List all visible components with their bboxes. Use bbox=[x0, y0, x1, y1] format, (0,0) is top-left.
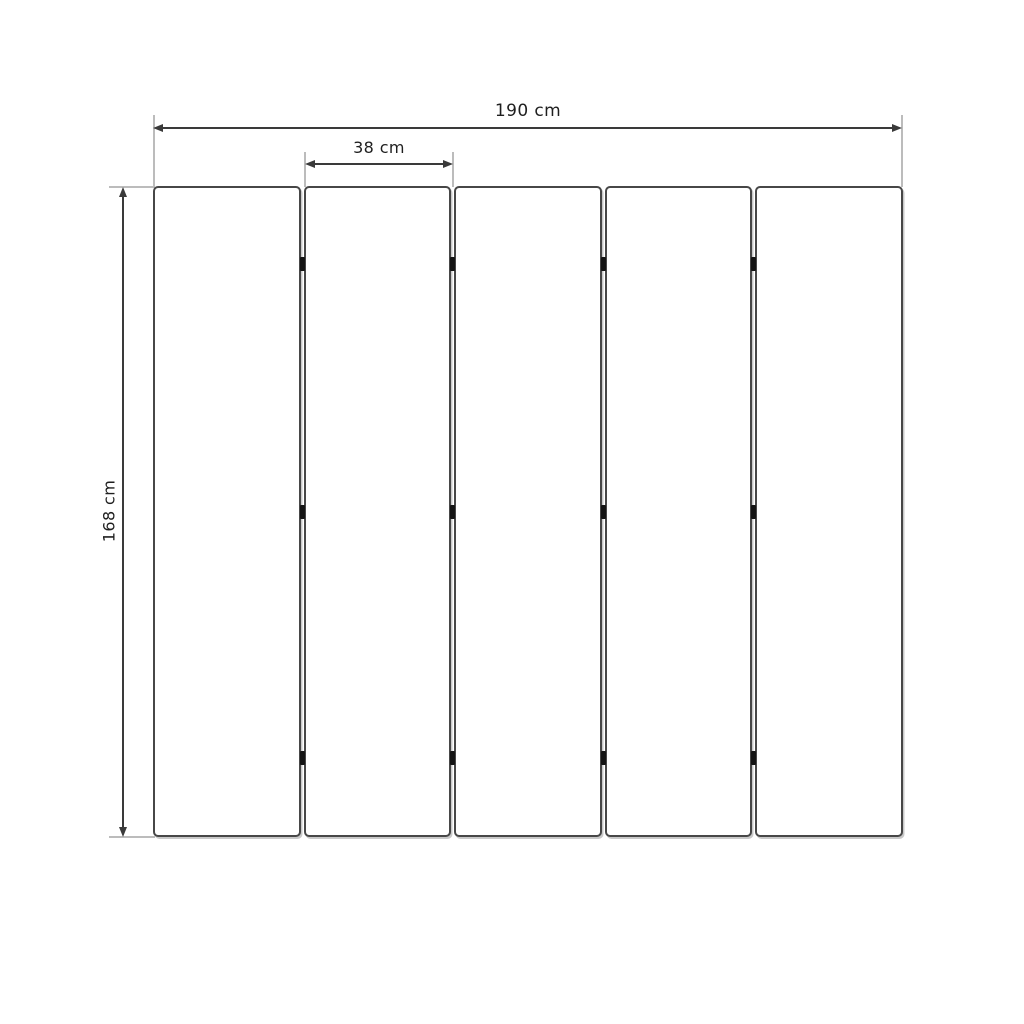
dimension-line-panel-width bbox=[310, 163, 448, 165]
arrowhead-right-icon bbox=[892, 124, 902, 132]
hinge-mark-icon bbox=[300, 751, 305, 765]
extension-line-panel-right bbox=[452, 152, 454, 187]
extension-line-height-bottom bbox=[109, 836, 155, 838]
arrowhead-right-icon bbox=[443, 160, 453, 168]
hinge-mark-icon bbox=[601, 505, 606, 519]
hinge-mark-icon bbox=[450, 505, 455, 519]
hinge-mark-icon bbox=[300, 505, 305, 519]
height-label: 168 cm bbox=[100, 480, 119, 542]
screen-panel bbox=[605, 186, 753, 837]
hinge-mark-icon bbox=[601, 751, 606, 765]
screen-panel bbox=[454, 186, 602, 837]
hinge-mark-icon bbox=[751, 257, 756, 271]
screen-panel bbox=[755, 186, 903, 837]
extension-line-panel-left bbox=[304, 152, 306, 187]
folding-screen-diagram: 190 cm 38 cm 168 cm bbox=[0, 0, 1024, 1024]
screen-panel bbox=[304, 186, 452, 837]
panel-width-label: 38 cm bbox=[303, 138, 455, 157]
panels-row bbox=[153, 186, 903, 837]
hinge-mark-icon bbox=[450, 257, 455, 271]
hinge-mark-icon bbox=[751, 505, 756, 519]
total-width-label: 190 cm bbox=[153, 101, 903, 121]
dimension-line-height bbox=[122, 193, 124, 831]
arrowhead-left-icon bbox=[305, 160, 315, 168]
arrowhead-down-icon bbox=[119, 827, 127, 837]
hinge-mark-icon bbox=[751, 751, 756, 765]
screen-panel bbox=[153, 186, 301, 837]
hinge-mark-icon bbox=[300, 257, 305, 271]
hinge-mark-icon bbox=[601, 257, 606, 271]
arrowhead-up-icon bbox=[119, 187, 127, 197]
arrowhead-left-icon bbox=[153, 124, 163, 132]
dimension-line-total-width bbox=[158, 127, 898, 129]
extension-line-height-top bbox=[109, 186, 155, 188]
hinge-mark-icon bbox=[450, 751, 455, 765]
